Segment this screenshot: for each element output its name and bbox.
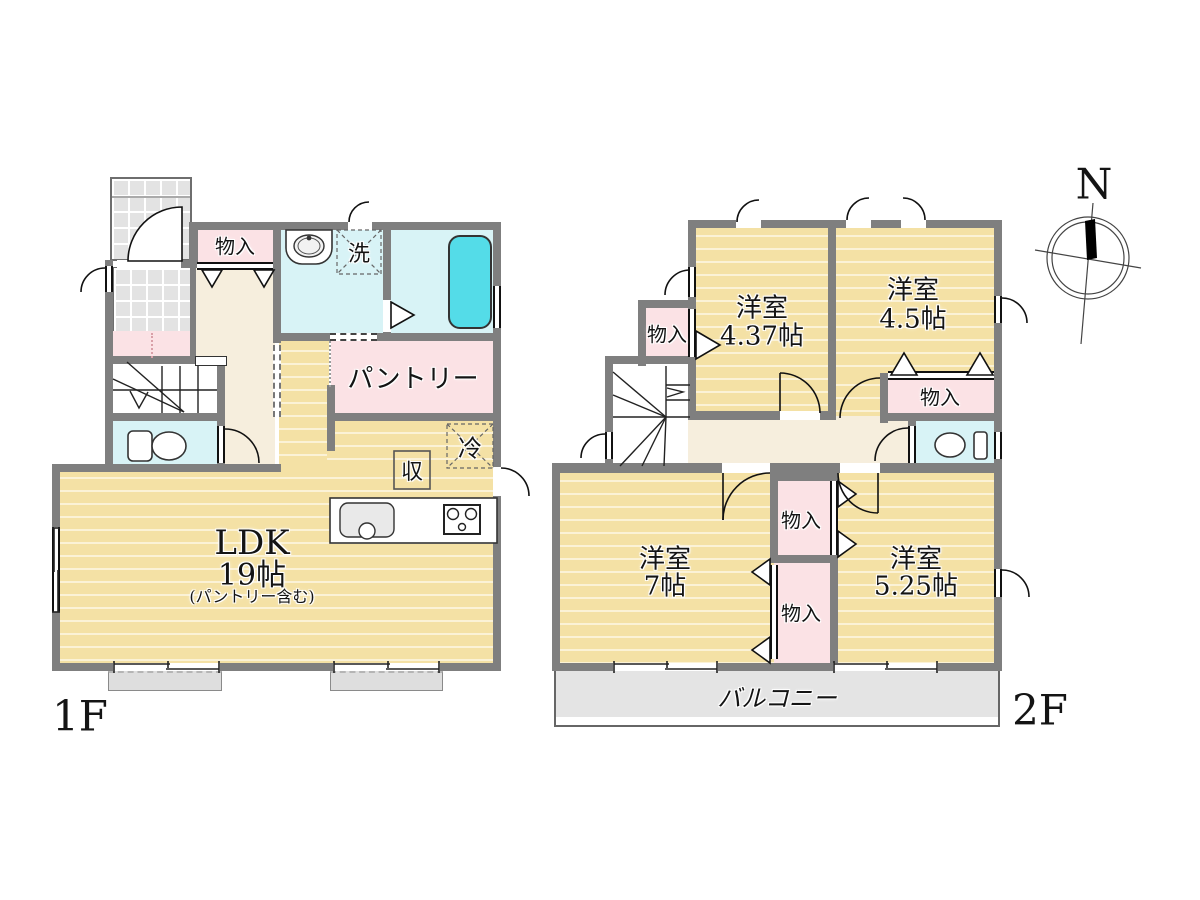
stairs-landing (195, 356, 227, 366)
window-525-east-swing (1002, 570, 1029, 597)
porch-step-line (112, 196, 190, 198)
window-437-west-swing (665, 270, 690, 295)
label-closet-2f-top: 物入 (781, 505, 821, 534)
washroom-backdoor-swing (349, 202, 369, 222)
toilet-2f-door-gap (908, 426, 916, 463)
wall (52, 464, 281, 472)
wall (552, 463, 1002, 473)
wall (190, 266, 196, 362)
label-closet-1f: 物入 (215, 231, 255, 260)
label-room4-size: 5.25帖 (874, 566, 958, 603)
stairs-2f-bg (611, 364, 692, 468)
washroom-backdoor-gap (348, 222, 372, 230)
kitchen-side-door-swing (501, 468, 529, 496)
stairs-window-swing (581, 434, 605, 458)
label-compass-north: N (1076, 160, 1113, 209)
door-437-gap (780, 411, 820, 420)
window-525-east (994, 569, 1002, 597)
label-closet-2f-right: 物入 (920, 382, 960, 411)
deck-1 (108, 671, 222, 691)
window-7-bottom (613, 663, 718, 671)
window-45-east-swing (1002, 298, 1027, 323)
label-closet-2f-left: 物入 (647, 319, 687, 348)
ldk-window-1 (113, 663, 220, 671)
window-437-swing (737, 200, 759, 222)
wall (552, 463, 560, 671)
floor-plan: 物入 洗 パントリー 冷 収 LDK 19帖 (パントリー含む) 1F 洋室 4… (0, 0, 1200, 900)
bathroom-window (493, 286, 501, 328)
room-toilet-2f (914, 421, 996, 467)
entry-tile (113, 267, 192, 333)
label-room2-size: 4.5帖 (879, 299, 946, 336)
closet-1f-opening (197, 262, 273, 270)
wall (830, 561, 838, 663)
entry-step-divider (151, 333, 155, 358)
washroom-pantry-opening (330, 333, 377, 341)
kitchen-side-door-gap (493, 467, 501, 496)
label-floor-2f: 2F (1012, 686, 1068, 735)
room-toilet-1f (111, 421, 219, 467)
closet-2f-bottom-opening (770, 565, 778, 659)
window-437-west (688, 267, 696, 297)
wall (383, 333, 501, 341)
room-kitchen-corridor (279, 339, 329, 469)
label-storage: 収 (401, 454, 423, 486)
closet-2f-right-opening (888, 371, 994, 380)
deck-2 (330, 671, 443, 691)
hall-sliding-door (273, 345, 281, 417)
closet-2f-top-opening (830, 481, 838, 555)
label-pantry: パントリー (347, 359, 478, 396)
window-45-top-gap-2 (901, 220, 926, 228)
ldk-window-2 (333, 663, 440, 671)
door-525-gap (840, 463, 880, 473)
label-balcony: バルコニー (717, 679, 837, 714)
porch-tile (110, 177, 192, 261)
wall (770, 473, 778, 559)
label-room1-size: 4.37帖 (720, 316, 804, 353)
wall (327, 413, 501, 421)
label-floor-1f: 1F (52, 692, 108, 741)
stairs-2f-window (605, 432, 613, 459)
stairs-1f-bg (111, 364, 219, 417)
wall (994, 463, 1002, 671)
toilet-2f-window (994, 432, 1002, 459)
entry-window-swing (81, 268, 105, 292)
window-45-swing-1 (847, 198, 869, 220)
label-laundry: 洗 (348, 236, 370, 268)
door-7-gap (722, 463, 770, 473)
room-bathroom (389, 228, 495, 335)
window-525-bottom (833, 663, 938, 671)
pantry-open-edge (329, 341, 333, 387)
wall (828, 220, 836, 420)
wall (273, 222, 281, 343)
compass-icon (1035, 203, 1141, 344)
entry-window (105, 266, 113, 292)
window-45-swing-2 (903, 198, 925, 220)
wall (638, 300, 696, 308)
label-closet-2f-bottom: 物入 (781, 598, 821, 627)
bathroom-door-gap (383, 300, 391, 332)
ldk-west-window (52, 527, 60, 612)
wall (105, 413, 225, 421)
entrance-doorway (117, 260, 181, 268)
window-437-top-gap (736, 220, 761, 228)
label-fridge: 冷 (458, 429, 482, 464)
label-room3-size: 7帖 (644, 566, 687, 603)
wall (327, 385, 335, 451)
wall (192, 222, 501, 230)
wall (605, 356, 696, 364)
label-ldk-note: (パントリー含む) (189, 583, 314, 607)
wall (880, 413, 1002, 421)
window-45-east (994, 296, 1002, 323)
closet-2f-left-opening (688, 309, 696, 357)
window-45-top-gap-1 (846, 220, 871, 228)
room-hallway-2f (688, 416, 910, 469)
toilet-1f-door-gap (217, 426, 225, 463)
wall (770, 555, 838, 563)
wall (770, 473, 838, 481)
